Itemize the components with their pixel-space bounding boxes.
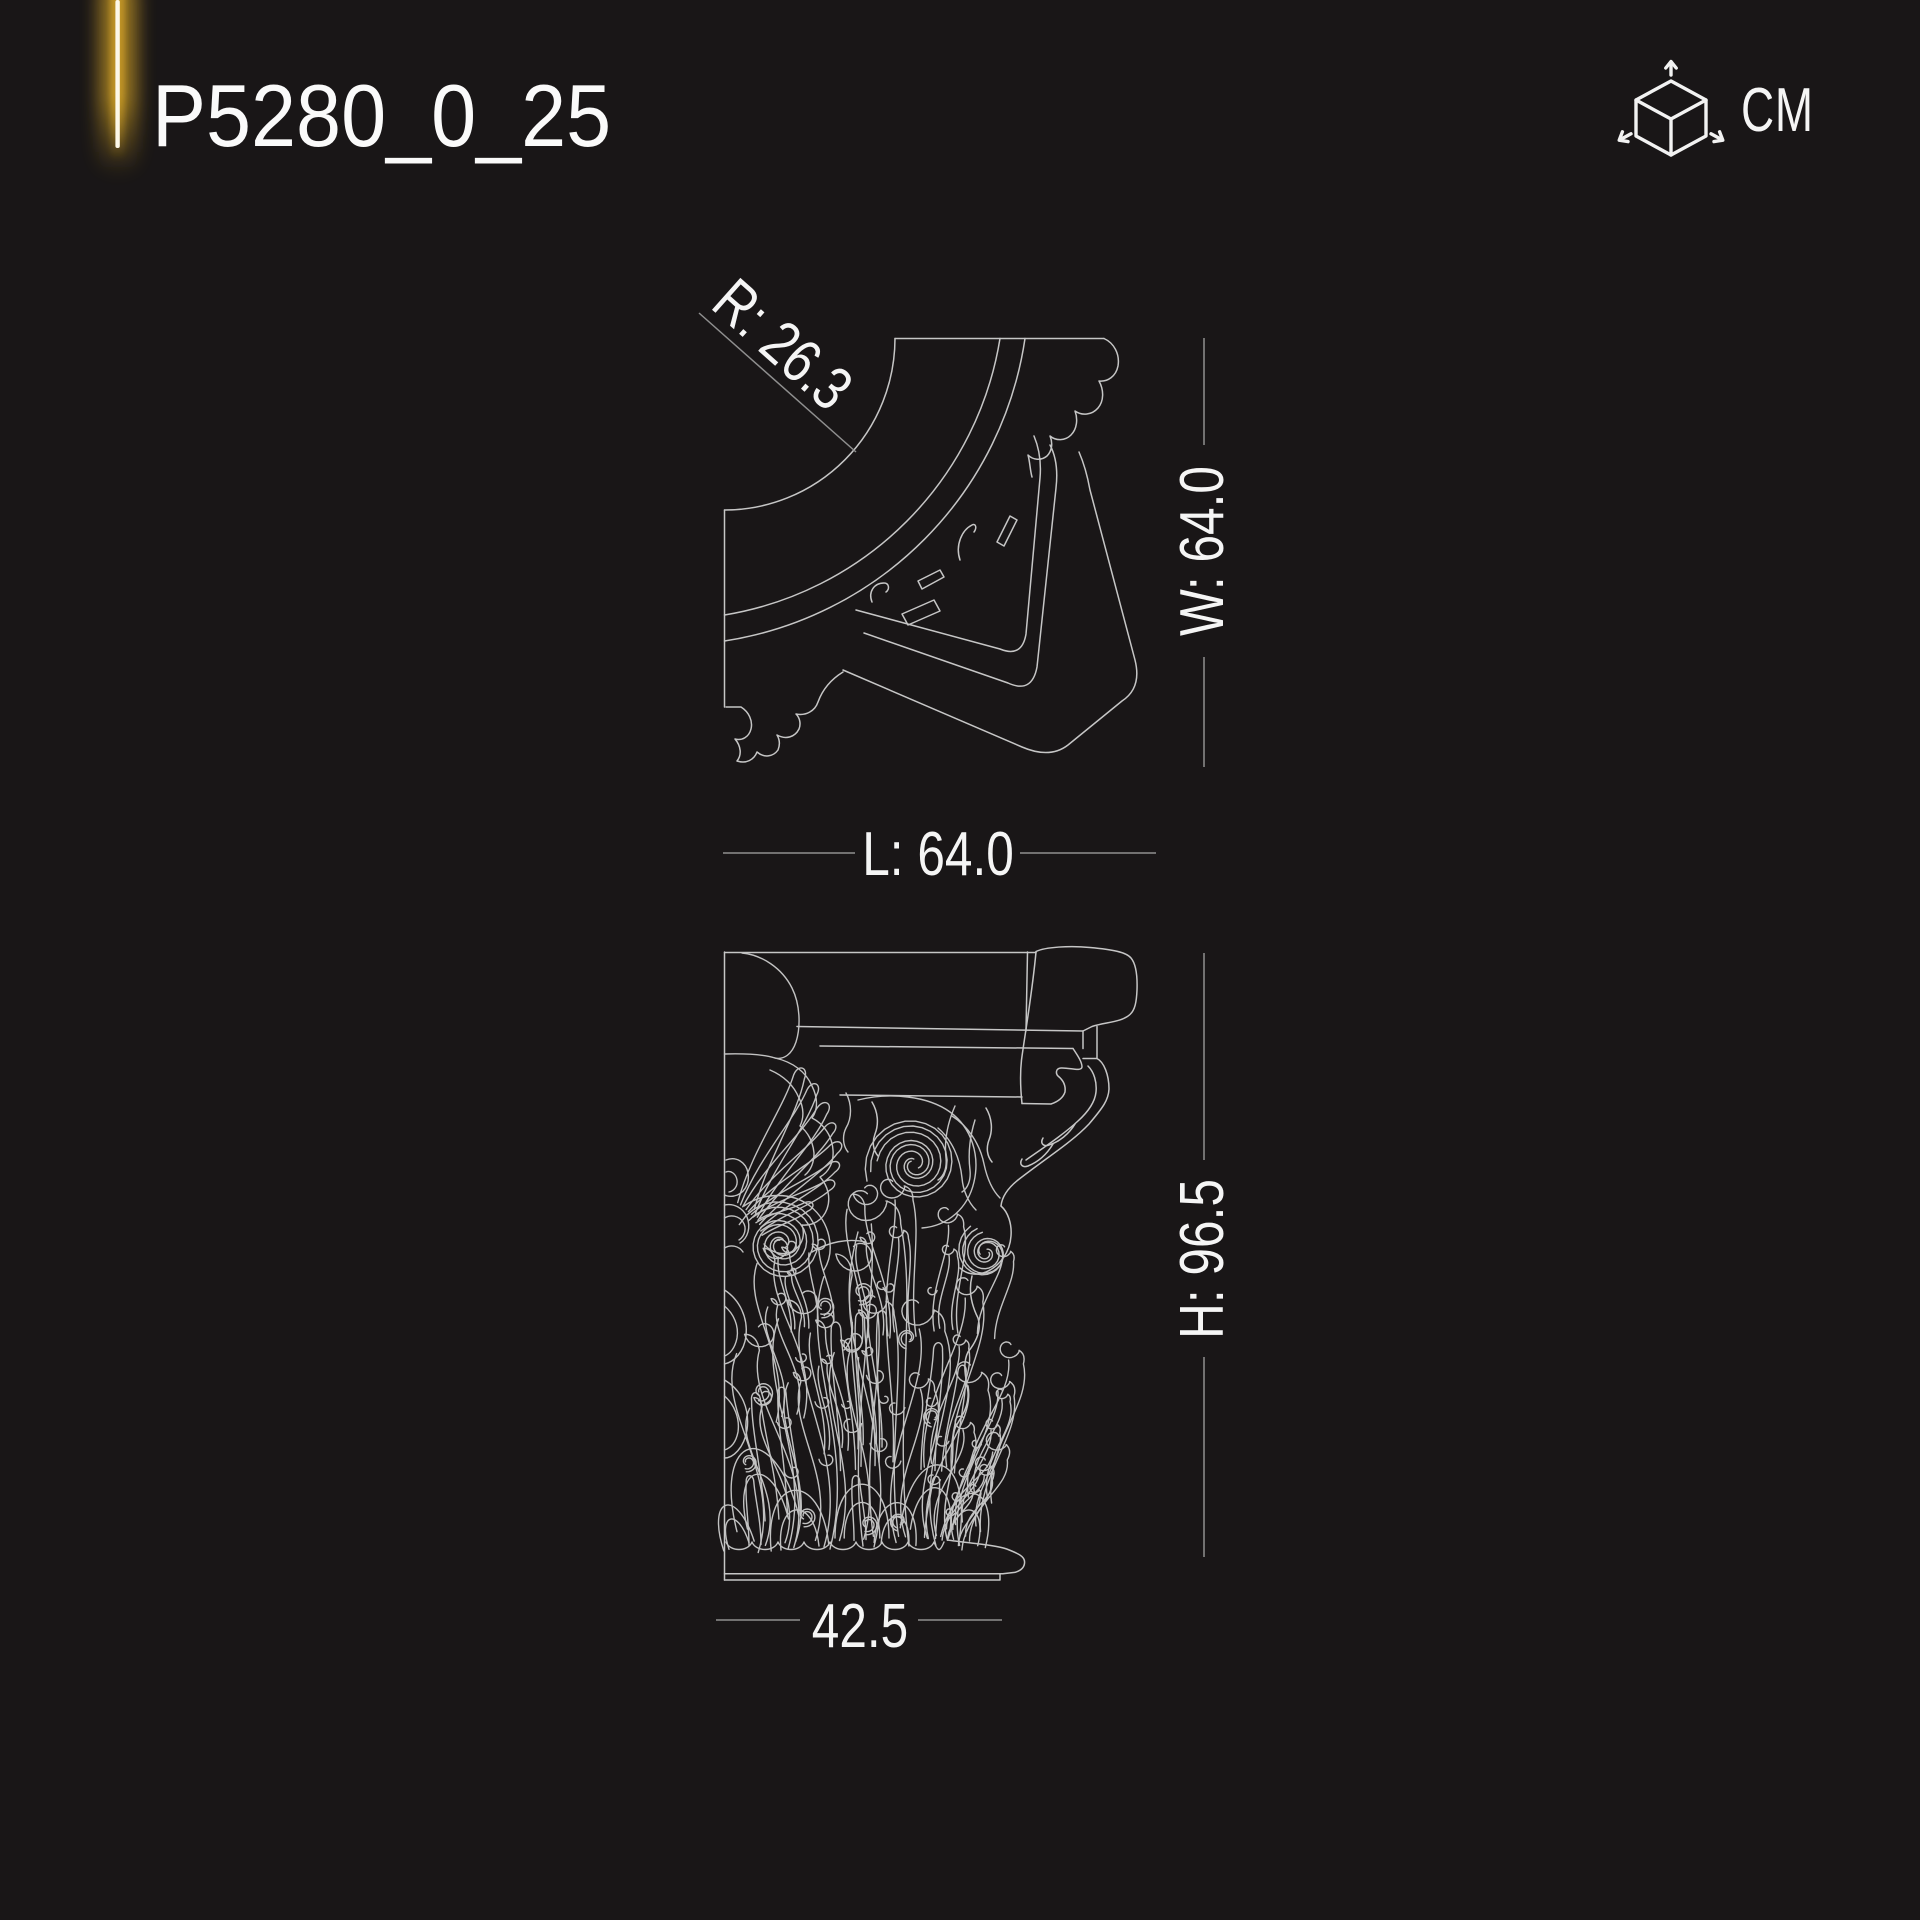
svg-text:L: 64.0: L: 64.0 — [862, 819, 1014, 889]
svg-text:P5280_0_25: P5280_0_25 — [152, 66, 611, 165]
svg-text:H: 96.5: H: 96.5 — [1167, 1179, 1237, 1339]
svg-text:42.5: 42.5 — [812, 1591, 909, 1661]
svg-text:W: 64.0: W: 64.0 — [1167, 466, 1237, 636]
svg-text:CM: CM — [1741, 75, 1814, 144]
